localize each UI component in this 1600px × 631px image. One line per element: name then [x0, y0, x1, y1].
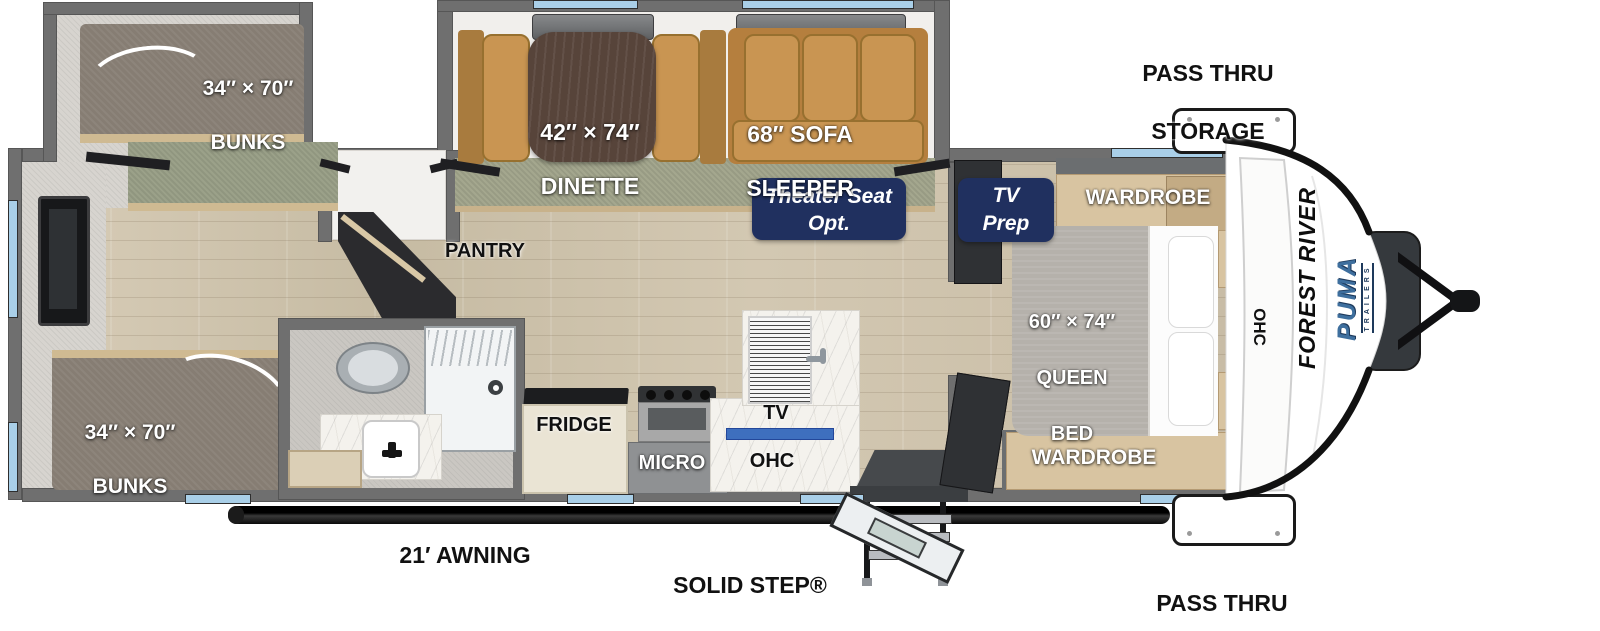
sofa-label: 68″ SOFA SLEEPER: [695, 94, 905, 229]
bedroom-ohc-label: OHC: [1248, 287, 1270, 367]
awning-label: 21′ AWNING: [370, 542, 560, 569]
window: [567, 494, 634, 504]
solid-step-entry-label: SOLID STEP® ENTRY: [655, 542, 845, 631]
window: [8, 422, 18, 492]
dinette-text: DINETTE: [490, 173, 690, 200]
fridge-label: FRIDGE: [522, 414, 626, 437]
sofa-line1: 68″ SOFA: [695, 121, 905, 148]
toilet-lid: [348, 350, 398, 386]
shower-head-dot: [493, 385, 499, 391]
solid-step-line1: SOLID STEP®: [655, 571, 845, 600]
rear-wall-tv: [38, 196, 90, 326]
queen-bed-size: 60″ × 74″: [972, 308, 1172, 336]
shower-head: [488, 380, 503, 395]
rear-bunks-size: 34″ × 70″: [30, 419, 230, 446]
dinette-slide-left-wall: [437, 0, 453, 168]
window: [742, 0, 914, 9]
bathroom-faucet-stem: [388, 442, 396, 458]
puma-sub-wordmark: TRAILERS: [1361, 263, 1374, 333]
pass-thru-top-line1: PASS THRU: [1118, 59, 1298, 88]
dinette-slide-right-wall: [934, 0, 950, 168]
dinette-seat-back-left: [458, 30, 484, 164]
entry-threshold: [850, 486, 968, 502]
rear-bed-trim: [128, 203, 338, 211]
pass-thru-top-line2: STORAGE: [1118, 117, 1298, 146]
screw-dot: [1275, 531, 1280, 536]
kitchen-tv-panel: [748, 316, 812, 404]
bathroom-cabinet: [288, 450, 362, 488]
front-cap-and-hitch: [1150, 120, 1490, 520]
bunk-slide-left-wall: [43, 2, 57, 162]
pass-thru-bottom-label: PASS THRU STORAGE: [1132, 560, 1312, 631]
bunk-slide-top-wall: [43, 2, 313, 15]
bunk-slide-text: BUNKS: [148, 129, 348, 156]
shower-curtain-rod: [428, 330, 512, 366]
awning-bar: [228, 506, 1170, 524]
sofa-line2: SLEEPER: [695, 175, 905, 202]
kitchen-faucet-stem: [820, 348, 826, 364]
puma-logo: PUMA TRAILERS: [1334, 240, 1386, 356]
rear-bunks-label: 34″ × 70″ BUNKS: [30, 392, 230, 527]
bunk-slide-size: 34″ × 70″: [148, 75, 348, 102]
queen-bed-label: 60″ × 74″ QUEEN BED: [972, 280, 1172, 476]
burner: [682, 390, 692, 400]
awning-end-cap: [228, 506, 244, 524]
tv-prep-line1: TV: [958, 182, 1054, 210]
dinette-label: 42″ × 74″ DINETTE: [490, 92, 690, 227]
pantry-label: PANTRY: [425, 240, 545, 263]
dinette-size: 42″ × 74″: [490, 119, 690, 146]
queen-bed-line3: BED: [972, 420, 1172, 448]
tv-prep-line2: Prep: [958, 210, 1054, 238]
wardrobe-top-label: WARDROBE: [1056, 186, 1240, 210]
ohc-strip: [726, 428, 834, 440]
burner: [700, 390, 710, 400]
window: [8, 200, 18, 318]
rear-bunks-trim: [52, 350, 288, 358]
micro-label: MICRO: [624, 452, 720, 475]
screw-dot: [1187, 531, 1192, 536]
window: [533, 0, 638, 9]
tv-prep-badge: TV Prep: [958, 178, 1054, 242]
pass-thru-bottom-line1: PASS THRU: [1132, 589, 1312, 618]
bunk-slide-label: 34″ × 70″ BUNKS: [148, 48, 348, 183]
floorplan: Theater Seat Opt. TV Prep 34″ × 70″ BUNK…: [0, 0, 1600, 631]
puma-wordmark: PUMA: [1334, 240, 1360, 356]
burner: [664, 390, 674, 400]
forest-river-logo: FOREST RIVER: [1294, 163, 1320, 393]
step-foot: [862, 578, 872, 586]
hitch-coupler: [1450, 290, 1480, 312]
queen-bed-line2: QUEEN: [972, 364, 1172, 392]
oven-window: [648, 408, 706, 430]
kitchen-ohc-label: OHC: [722, 450, 822, 473]
pass-thru-top-label: PASS THRU STORAGE: [1118, 30, 1298, 175]
rear-wall-tv-screen: [49, 209, 77, 309]
burner: [646, 390, 656, 400]
rear-bunks-text: BUNKS: [30, 473, 230, 500]
kitchen-tv-label: TV: [726, 402, 826, 425]
